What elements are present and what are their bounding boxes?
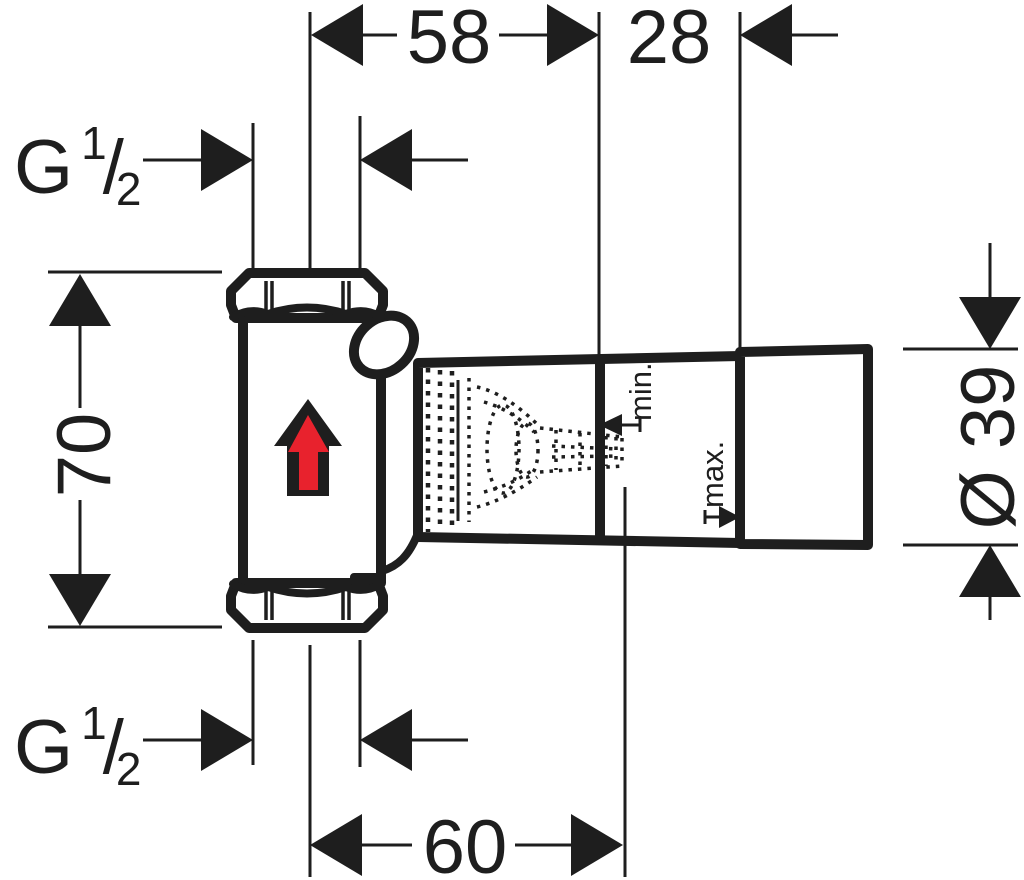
dim-top-depth-value: 28 bbox=[627, 0, 712, 80]
label-min-text: min. bbox=[623, 362, 658, 421]
dim-cap-diameter-value: Ø 39 bbox=[946, 365, 1024, 530]
rough-in-funnel bbox=[418, 356, 740, 543]
thread-bottom-label: G1/2 bbox=[14, 697, 141, 795]
dim-top-width-value: 58 bbox=[407, 0, 492, 80]
dim-cap-diameter: Ø 39 bbox=[903, 243, 1024, 620]
dimension-drawing-svg: 58 28 G1/2 70 bbox=[0, 0, 1024, 880]
valve-assembly bbox=[231, 273, 868, 628]
dim-spindle-depth: 60 bbox=[310, 805, 623, 880]
thread-top-label: G1/2 bbox=[14, 117, 141, 215]
protection-cap bbox=[740, 349, 868, 545]
dim-thread-top: G1/2 bbox=[14, 116, 468, 270]
dim-height: 70 bbox=[42, 272, 222, 627]
dim-top-depth: 28 bbox=[627, 0, 838, 80]
dim-height-value: 70 bbox=[42, 413, 127, 498]
dim-spindle-depth-value: 60 bbox=[423, 805, 508, 880]
label-max-text: max. bbox=[695, 441, 730, 508]
top-hex-nut bbox=[231, 273, 383, 318]
dim-thread-bottom: G1/2 bbox=[14, 640, 468, 795]
technical-drawing: 58 28 G1/2 70 bbox=[0, 0, 1024, 880]
dim-top-width: 58 bbox=[311, 0, 599, 80]
bottom-hex-nut bbox=[231, 583, 383, 628]
